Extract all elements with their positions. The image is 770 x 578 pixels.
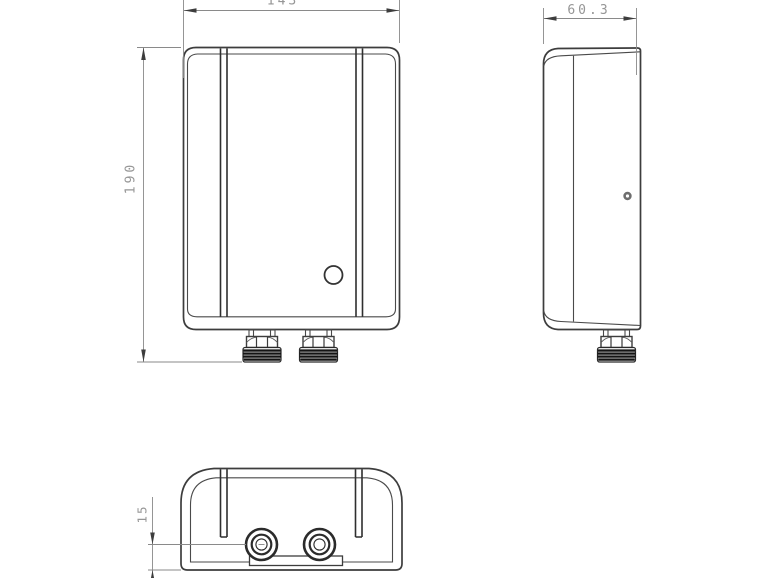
dim-label-port-offset: 15 xyxy=(135,504,150,523)
side-view xyxy=(544,48,641,362)
front-view xyxy=(184,48,400,363)
dim-label-side-depth: 60.3 xyxy=(567,3,610,18)
dim-label-front-height: 190 xyxy=(124,162,139,194)
port-circle-right xyxy=(304,529,335,560)
pipe-fitting-right xyxy=(300,330,338,362)
port-circle-left xyxy=(246,529,277,560)
pipe-fitting-side xyxy=(598,330,636,362)
bottom-body-outline xyxy=(181,469,402,571)
technical-drawing: 143 190 60.3 xyxy=(0,0,770,578)
bottom-view xyxy=(181,469,402,571)
indicator-circle xyxy=(325,266,343,284)
drawing-canvas: 143 190 60.3 xyxy=(0,0,770,578)
side-body-outline xyxy=(544,48,641,330)
dim-label-front-width: 143 xyxy=(267,0,299,9)
pipe-fitting-left xyxy=(243,330,281,362)
front-body-outline xyxy=(184,48,400,330)
